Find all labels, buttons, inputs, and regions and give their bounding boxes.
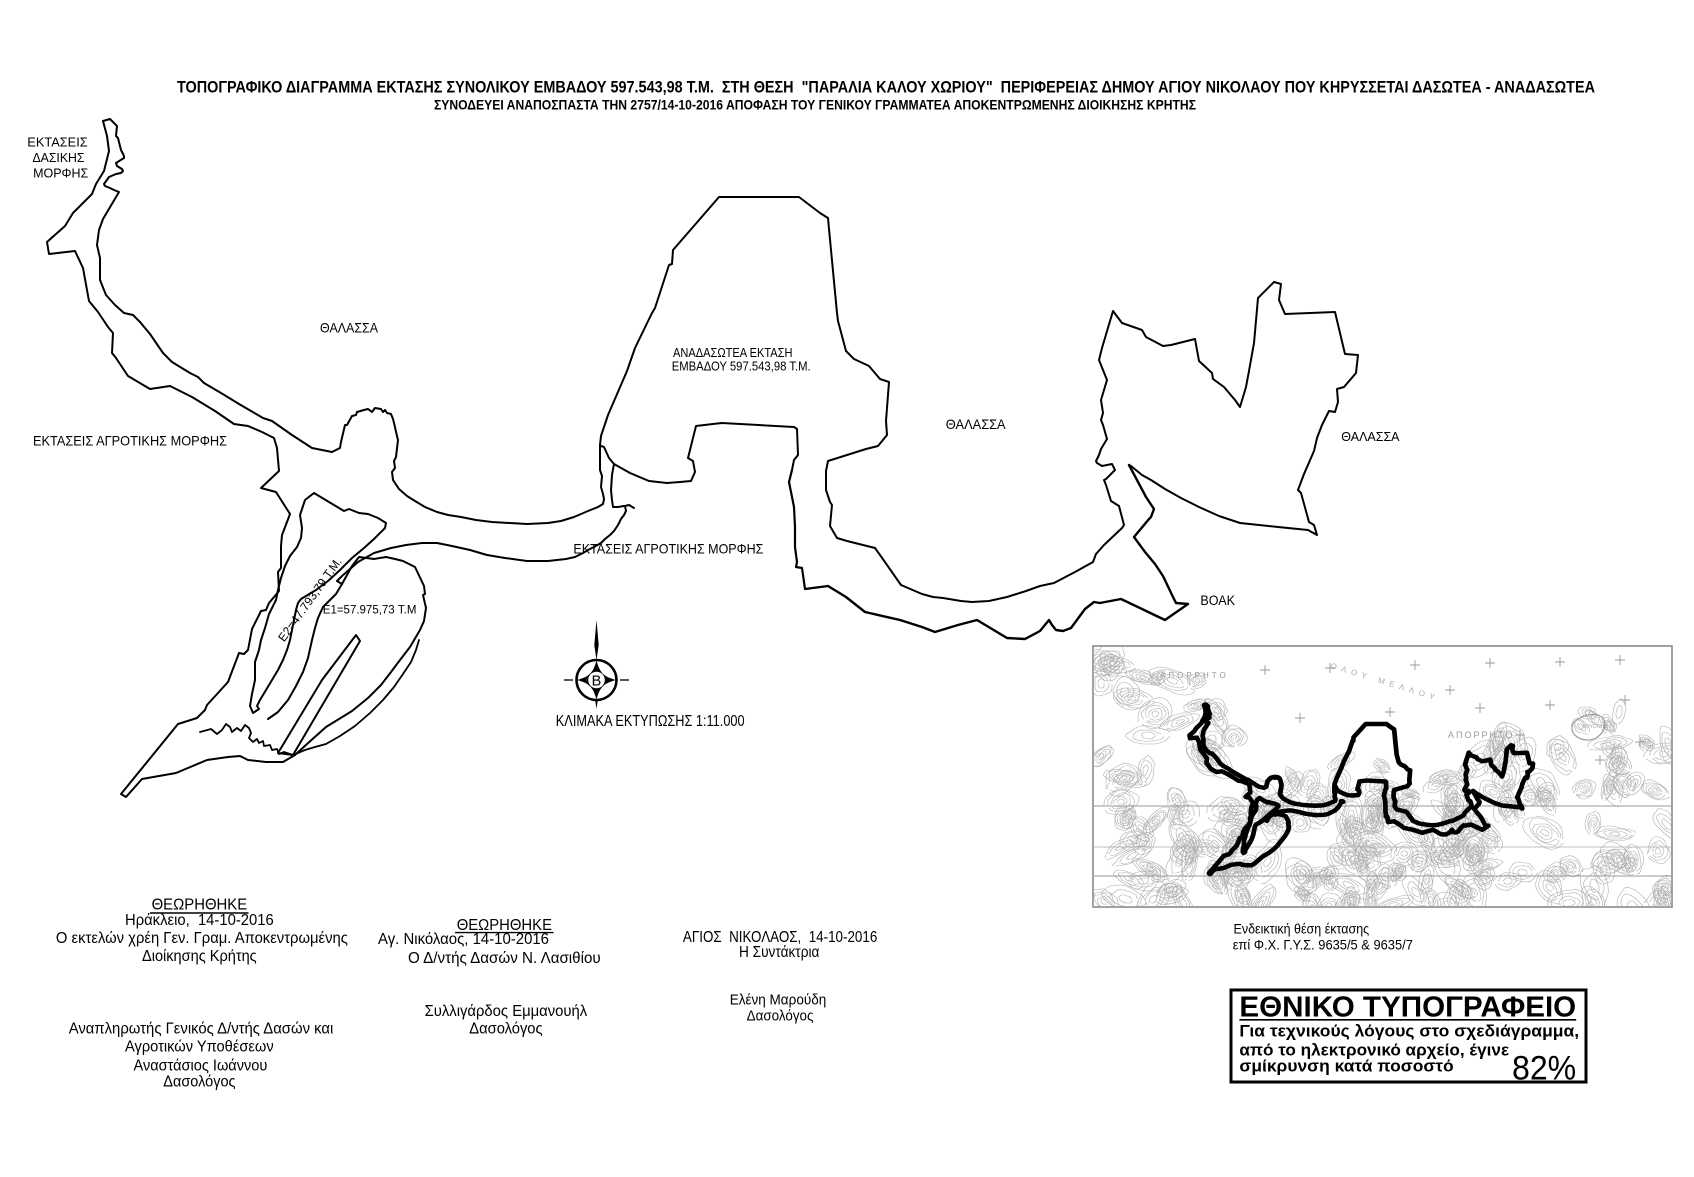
svg-text:Ηράκλειο, 14-10-2016: Ηράκλειο, 14-10-2016 (125, 912, 274, 929)
svg-text:82%: 82% (1512, 1049, 1576, 1087)
svg-text:Η Συντάκτρια: Η Συντάκτρια (739, 944, 819, 961)
svg-text:ΔΑΣΙΚΗΣ: ΔΑΣΙΚΗΣ (33, 150, 85, 165)
svg-text:Αναστάσιος Ιωάννου: Αναστάσιος Ιωάννου (134, 1058, 268, 1075)
svg-text:ΕΚΤΑΣΕΙΣ ΑΓΡΟΤΙΚΗΣ ΜΟΡΦΗΣ: ΕΚΤΑΣΕΙΣ ΑΓΡΟΤΙΚΗΣ ΜΟΡΦΗΣ (33, 433, 227, 449)
svg-text:Αγροτικών Υποθέσεων: Αγροτικών Υποθέσεων (125, 1038, 274, 1055)
svg-text:B: B (592, 673, 602, 689)
svg-text:ΚΛΙΜΑΚΑ ΕΚΤΥΠΩΣΗΣ 1:11.000: ΚΛΙΜΑΚΑ ΕΚΤΥΠΩΣΗΣ 1:11.000 (556, 713, 745, 730)
svg-text:ΘΑΛΑΣΣΑ: ΘΑΛΑΣΣΑ (946, 416, 1006, 432)
svg-text:ΣΥΝΟΔΕΥΕΙ ΑΝΑΠΟΣΠΑΣΤΑ ΤΗΝ 2757: ΣΥΝΟΔΕΥΕΙ ΑΝΑΠΟΣΠΑΣΤΑ ΤΗΝ 2757/14-10-201… (434, 97, 1196, 113)
svg-text:Ο Δ/ντής Δασών Ν. Λασιθίου: Ο Δ/ντής Δασών Ν. Λασιθίου (408, 950, 601, 967)
svg-text:ΘΕΩΡΗΘΗΚΕ: ΘΕΩΡΗΘΗΚΕ (152, 897, 248, 914)
svg-text:Για τεχνικούς λόγους στο σχεδι: Για τεχνικούς λόγους στο σχεδιάγραμμα, (1239, 1022, 1579, 1041)
svg-text:επί Φ.Χ. Γ.Υ.Σ. 9635/5 & 9635/: επί Φ.Χ. Γ.Υ.Σ. 9635/5 & 9635/7 (1233, 938, 1413, 953)
svg-text:ΜΟΡΦΗΣ: ΜΟΡΦΗΣ (33, 166, 88, 181)
svg-text:Δασολόγος: Δασολόγος (163, 1073, 235, 1090)
svg-text:ΑΠΟΡΡΗΤΟ: ΑΠΟΡΡΗΤΟ (1448, 730, 1514, 740)
svg-text:ΑΝΑΔΑΣΩΤΕΑ ΕΚΤΑΣΗ: ΑΝΑΔΑΣΩΤΕΑ ΕΚΤΑΣΗ (673, 346, 793, 360)
svg-text:ΘΑΛΑΣΣΑ: ΘΑΛΑΣΣΑ (320, 320, 379, 336)
svg-text:ΑΠΟΡΡΗΤΟ: ΑΠΟΡΡΗΤΟ (1160, 671, 1229, 680)
svg-text:ΒΟΑΚ: ΒΟΑΚ (1200, 593, 1235, 608)
svg-text:Αναπληρωτής Γενικός Δ/ντής Δασ: Αναπληρωτής Γενικός Δ/ντής Δασών και (69, 1020, 334, 1037)
svg-text:Αγ. Νικόλαος, 14-10-2016: Αγ. Νικόλαος, 14-10-2016 (378, 931, 549, 948)
svg-text:σμίκρυνση κατά ποσοστό: σμίκρυνση κατά ποσοστό (1239, 1057, 1453, 1076)
svg-text:Δασολόγος: Δασολόγος (747, 1008, 814, 1025)
svg-text:ΤΟΠΟΓΡΑΦΙΚΟ ΔΙΑΓΡΑΜΜΑ ΕΚΤΑΣΗΣ: ΤΟΠΟΓΡΑΦΙΚΟ ΔΙΑΓΡΑΜΜΑ ΕΚΤΑΣΗΣ ΣΥΝΟΛΙΚΟΥ … (177, 78, 1595, 97)
svg-text:ΕΚΤΑΣΕΙΣ: ΕΚΤΑΣΕΙΣ (27, 135, 87, 150)
svg-text:E1=57.975,73 Τ.Μ: E1=57.975,73 Τ.Μ (323, 603, 417, 617)
svg-text:Ενδεικτική θέση έκτασης: Ενδεικτική θέση έκτασης (1234, 922, 1370, 937)
svg-text:ΕΘΝΙΚΟ ΤΥΠΟΓΡΑΦΕΙΟ: ΕΘΝΙΚΟ ΤΥΠΟΓΡΑΦΕΙΟ (1239, 992, 1576, 1024)
svg-text:Διοίκησης Κρήτης: Διοίκησης Κρήτης (142, 948, 257, 965)
svg-text:ΘΑΛΑΣΣΑ: ΘΑΛΑΣΣΑ (1341, 429, 1399, 444)
svg-text:Συλλιγάρδος Εμμανουήλ: Συλλιγάρδος Εμμανουήλ (425, 1003, 588, 1020)
svg-text:Δασολόγος: Δασολόγος (469, 1020, 542, 1037)
svg-text:ΕΚΤΑΣΕΙΣ ΑΓΡΟΤΙΚΗΣ ΜΟΡΦΗΣ: ΕΚΤΑΣΕΙΣ ΑΓΡΟΤΙΚΗΣ ΜΟΡΦΗΣ (573, 540, 763, 556)
svg-text:ΕΜΒΑΔΟΥ 597.543,98 Τ.Μ.: ΕΜΒΑΔΟΥ 597.543,98 Τ.Μ. (672, 360, 811, 374)
svg-text:Ελένη Μαρούδη: Ελένη Μαρούδη (730, 992, 827, 1009)
svg-text:Ο εκτελών χρέη Γεν. Γραμ. Αποκ: Ο εκτελών χρέη Γεν. Γραμ. Αποκεντρωμένης (56, 930, 348, 947)
